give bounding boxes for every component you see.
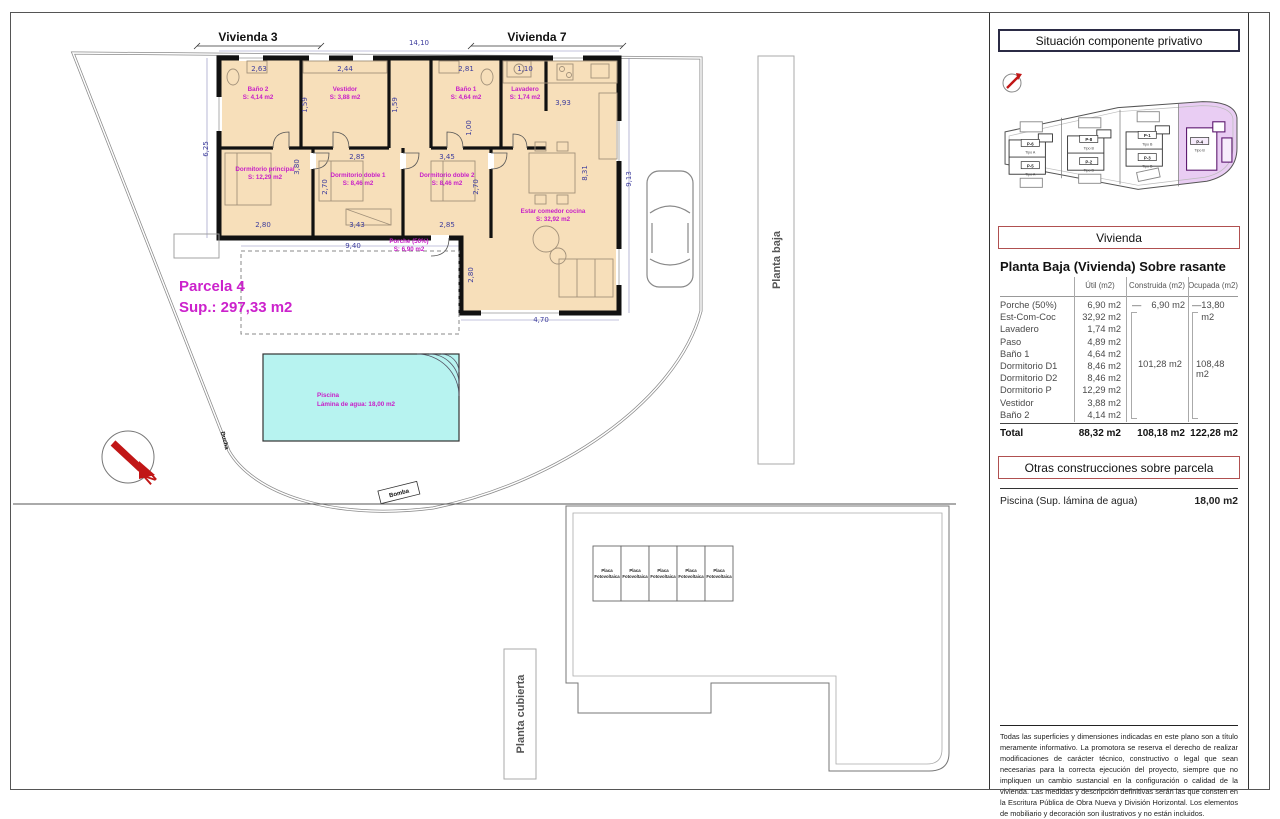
- dimension-label: 14,10: [409, 39, 429, 47]
- table-cell: Dormitorio D2: [1000, 372, 1074, 384]
- car: [647, 171, 693, 287]
- dimension-label: 2,80: [255, 221, 271, 229]
- solar-panel-label: Fotovoltaica: [678, 574, 704, 579]
- room-area: S: 32,92 m2: [536, 216, 571, 223]
- solar-panel-label: Placa: [657, 568, 669, 573]
- table-row: Est-Com-Coc32,92 m2: [1000, 311, 1238, 323]
- ducha-label: Ducha: [219, 431, 230, 451]
- total-util: 88,32 m2: [1074, 428, 1126, 439]
- col-ocupada: Ocupada (m2): [1188, 281, 1238, 290]
- planta-baja-label-box: Planta baja: [758, 56, 794, 464]
- dimension-label: 2,81: [458, 65, 474, 73]
- room-area: S: 4,64 m2: [451, 94, 482, 101]
- room-name: Lavadero: [511, 86, 539, 93]
- otras-header: Otras construcciones sobre parcela: [998, 456, 1240, 479]
- pool: Piscina Lámina de agua: 18,00 m2: [263, 354, 459, 441]
- room-name: Dormitorio principal: [235, 166, 294, 173]
- pool-area: Lámina de agua: 18,00 m2: [317, 401, 396, 408]
- table-cell: 1,74 m2: [1074, 323, 1126, 335]
- dimension-label: 8,31: [581, 165, 589, 181]
- table-title: Planta Baja (Vivienda) Sobre rasante: [1000, 259, 1238, 274]
- dimension-label: 3,93: [555, 99, 571, 107]
- plot-id: P-8: [1085, 137, 1092, 142]
- construida-group-value: 101,28 m2: [1138, 359, 1182, 369]
- table-cell: —6,90 m2: [1126, 299, 1188, 311]
- table-row: Paso4,89 m2: [1000, 336, 1238, 348]
- total-row: Total 88,32 m2 108,18 m2 122,28 m2: [1000, 423, 1238, 443]
- dimension-label: 1,00: [465, 120, 473, 136]
- ocupada-group-value: 108,48 m2: [1196, 359, 1238, 379]
- col-construida: Construida (m2): [1126, 281, 1188, 290]
- dimension-label: 9,40: [345, 242, 361, 250]
- total-construida: 108,18 m2: [1126, 428, 1188, 439]
- table-cell: Est-Com-Coc: [1000, 311, 1074, 323]
- table-row: Dormitorio P12,29 m2: [1000, 384, 1238, 396]
- plot-tipo: Tipo A: [1025, 151, 1036, 155]
- total-label: Total: [1000, 428, 1074, 439]
- table-cell: Vestidor: [1000, 397, 1074, 409]
- dimension-label: 2,85: [349, 153, 365, 161]
- room-area: S: 8,46 m2: [432, 180, 463, 187]
- piscina-value: 18,00 m2: [1194, 496, 1238, 507]
- solar-panel-label: Placa: [601, 568, 613, 573]
- room-area: S: 12,29 m2: [248, 174, 283, 181]
- dimension-label: 4,70: [533, 316, 549, 324]
- otras-title: Otras construcciones sobre parcela: [1025, 461, 1214, 475]
- room-name: Vestidor: [333, 86, 358, 93]
- dimension-label: 2,85: [439, 221, 455, 229]
- info-panel: Situación componente privativo: [989, 13, 1249, 789]
- bomba-label-box: Bomba: [378, 481, 420, 503]
- table-header-row: Útil (m2) Construida (m2) Ocupada (m2): [1000, 277, 1238, 297]
- dimension-label: 1,59: [391, 97, 399, 113]
- dimension-label: 1,59: [301, 97, 309, 113]
- room-name: Baño 2: [248, 86, 269, 93]
- room-name: Dormitorio doble 1: [330, 172, 386, 179]
- plot-tipo: Tipo B: [1084, 147, 1095, 151]
- table-cell: 32,92 m2: [1074, 311, 1126, 323]
- parcela-area: Sup.: 297,33 m2: [179, 299, 292, 316]
- table-cell: Dormitorio D1: [1000, 360, 1074, 372]
- col-util: Útil (m2): [1074, 281, 1126, 290]
- solar-panel-label: Fotovoltaica: [622, 574, 648, 579]
- table-row: Baño 24,14 m2: [1000, 409, 1238, 421]
- situacion-title: Situación componente privativo: [1036, 34, 1203, 48]
- room-area: S: 6,90 m2: [394, 246, 425, 253]
- table-row: Lavadero1,74 m2: [1000, 323, 1238, 335]
- construida-bracket: [1131, 312, 1137, 419]
- room-area: S: 1,74 m2: [510, 94, 541, 101]
- plot-id: P-6: [1027, 141, 1034, 146]
- dimension-label: 2,44: [337, 65, 353, 73]
- room-area: S: 4,14 m2: [243, 94, 274, 101]
- plot-tipo: Tipo A: [1025, 173, 1036, 177]
- table-cell: Dormitorio P: [1000, 384, 1074, 396]
- piscina-label: Piscina (Sup. lámina de agua): [1000, 496, 1137, 507]
- room-name: Estar comedor cocina: [521, 208, 586, 215]
- table-row: Porche (50%)6,90 m2—6,90 m2—13,80 m2: [1000, 299, 1238, 311]
- table-cell: 4,89 m2: [1074, 336, 1126, 348]
- plot-id: P-1: [1144, 133, 1151, 138]
- table-cell: 8,46 m2: [1074, 372, 1126, 384]
- total-ocupada: 122,28 m2: [1188, 428, 1238, 439]
- site-map: P-6Tipo AP-5Tipo AP-8Tipo BP-2Tipo BP-1T…: [999, 91, 1239, 203]
- porch-dashed-outline: [241, 251, 459, 334]
- planta-baja-label: Planta baja: [771, 230, 783, 289]
- solar-panel-label: Placa: [685, 568, 697, 573]
- vivienda-7-label: Vivienda 7: [507, 30, 566, 44]
- table-cell: 3,88 m2: [1074, 397, 1126, 409]
- drawing-sheet: Planta baja Piscina Lámina de agua: 18,0…: [10, 12, 1270, 790]
- dimension-label: 9,13: [625, 171, 633, 187]
- dimension-label: 1,10: [517, 65, 533, 73]
- table-cell: 8,46 m2: [1074, 360, 1126, 372]
- situacion-header: Situación componente privativo: [998, 29, 1240, 52]
- floor-plan-drawing: Planta baja Piscina Lámina de agua: 18,0…: [11, 13, 989, 787]
- north-arrow: N: [102, 431, 160, 489]
- plot-tipo: Tipo B: [1084, 169, 1095, 173]
- areas-table: Útil (m2) Construida (m2) Ocupada (m2) P…: [1000, 277, 1238, 447]
- dimension-label: 3,43: [349, 221, 365, 229]
- dimension-label: 2,80: [467, 267, 475, 283]
- solar-panel-label: Fotovoltaica: [594, 574, 620, 579]
- table-cell: Porche (50%): [1000, 299, 1074, 311]
- planta-cubierta-label-box: Planta cubierta: [504, 649, 536, 779]
- plot-tipo: Tipo B: [1195, 149, 1206, 153]
- room-name: Dormitorio doble 2: [419, 172, 475, 179]
- plot-tipo: Tipo B: [1142, 142, 1153, 146]
- dimension-label: 2,70: [321, 179, 329, 195]
- table-cell: Paso: [1000, 336, 1074, 348]
- room-area: S: 8,46 m2: [343, 180, 374, 187]
- room-name: Porche (50%): [389, 238, 428, 245]
- planta-cubierta-label: Planta cubierta: [515, 674, 527, 754]
- table-row: Vestidor3,88 m2: [1000, 397, 1238, 409]
- vivienda-header: Vivienda: [998, 226, 1240, 249]
- dimension-label: 2,63: [251, 65, 267, 73]
- parcela-title: Parcela 4: [179, 278, 246, 295]
- plot-id: P-4: [1196, 139, 1203, 144]
- dimension-label: 6,25: [202, 141, 210, 157]
- table-cell: 4,64 m2: [1074, 348, 1126, 360]
- table-cell: Baño 2: [1000, 409, 1074, 421]
- piscina-row: Piscina (Sup. lámina de agua) 18,00 m2: [1000, 488, 1238, 507]
- dimension-label: 3,45: [439, 153, 455, 161]
- room-area: S: 3,88 m2: [330, 94, 361, 101]
- table-cell: Baño 1: [1000, 348, 1074, 360]
- plot-id: P-2: [1085, 159, 1092, 164]
- table-cell: Lavadero: [1000, 323, 1074, 335]
- solar-panel-label: Fotovoltaica: [706, 574, 732, 579]
- plot-id: P-5: [1027, 163, 1034, 168]
- dimension-label: 2,70: [472, 179, 480, 195]
- table-cell: 6,90 m2: [1074, 299, 1126, 311]
- table-cell: 4,14 m2: [1074, 409, 1126, 421]
- plot-id: P-3: [1144, 155, 1151, 160]
- table-cell: 12,29 m2: [1074, 384, 1126, 396]
- pool-name: Piscina: [317, 392, 340, 399]
- disclaimer-text: Todas las superficies y dimensiones indi…: [1000, 725, 1238, 819]
- plot-tipo: Tipo B: [1142, 165, 1153, 169]
- vivienda-3-label: Vivienda 3: [218, 30, 277, 44]
- table-cell: —13,80 m2: [1188, 299, 1238, 311]
- solar-panel-label: Placa: [713, 568, 725, 573]
- room-name: Baño 1: [456, 86, 477, 93]
- vivienda-title: Vivienda: [1096, 231, 1142, 245]
- solar-panel-label: Placa: [629, 568, 641, 573]
- roof-plan: [566, 506, 949, 771]
- solar-panel-label: Fotovoltaica: [650, 574, 676, 579]
